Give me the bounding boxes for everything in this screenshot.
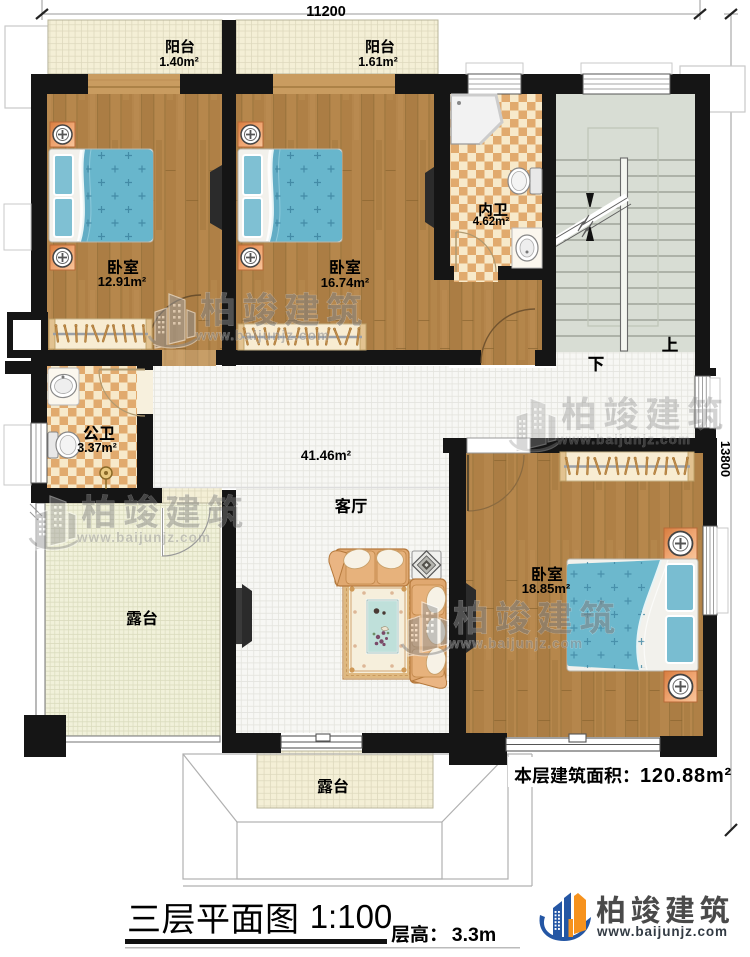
svg-text:41.46m²: 41.46m² [301, 448, 352, 463]
svg-text:3.3m: 3.3m [452, 924, 496, 946]
svg-text:1:100: 1:100 [310, 898, 393, 935]
svg-text:11200: 11200 [306, 4, 346, 20]
svg-text:4.62m²: 4.62m² [473, 216, 510, 228]
svg-text:16.74m²: 16.74m² [321, 275, 370, 290]
svg-text:12.91m²: 12.91m² [98, 274, 147, 289]
svg-text:1.61m²: 1.61m² [358, 55, 398, 69]
svg-text:3.37m²: 3.37m² [77, 441, 117, 455]
svg-text:120.88m²: 120.88m² [640, 765, 732, 787]
svg-text:1.40m²: 1.40m² [159, 55, 199, 69]
svg-text:www.baijunjz.com: www.baijunjz.com [596, 924, 728, 939]
svg-text:13800: 13800 [718, 441, 733, 477]
svg-text:18.85m²: 18.85m² [522, 581, 571, 596]
